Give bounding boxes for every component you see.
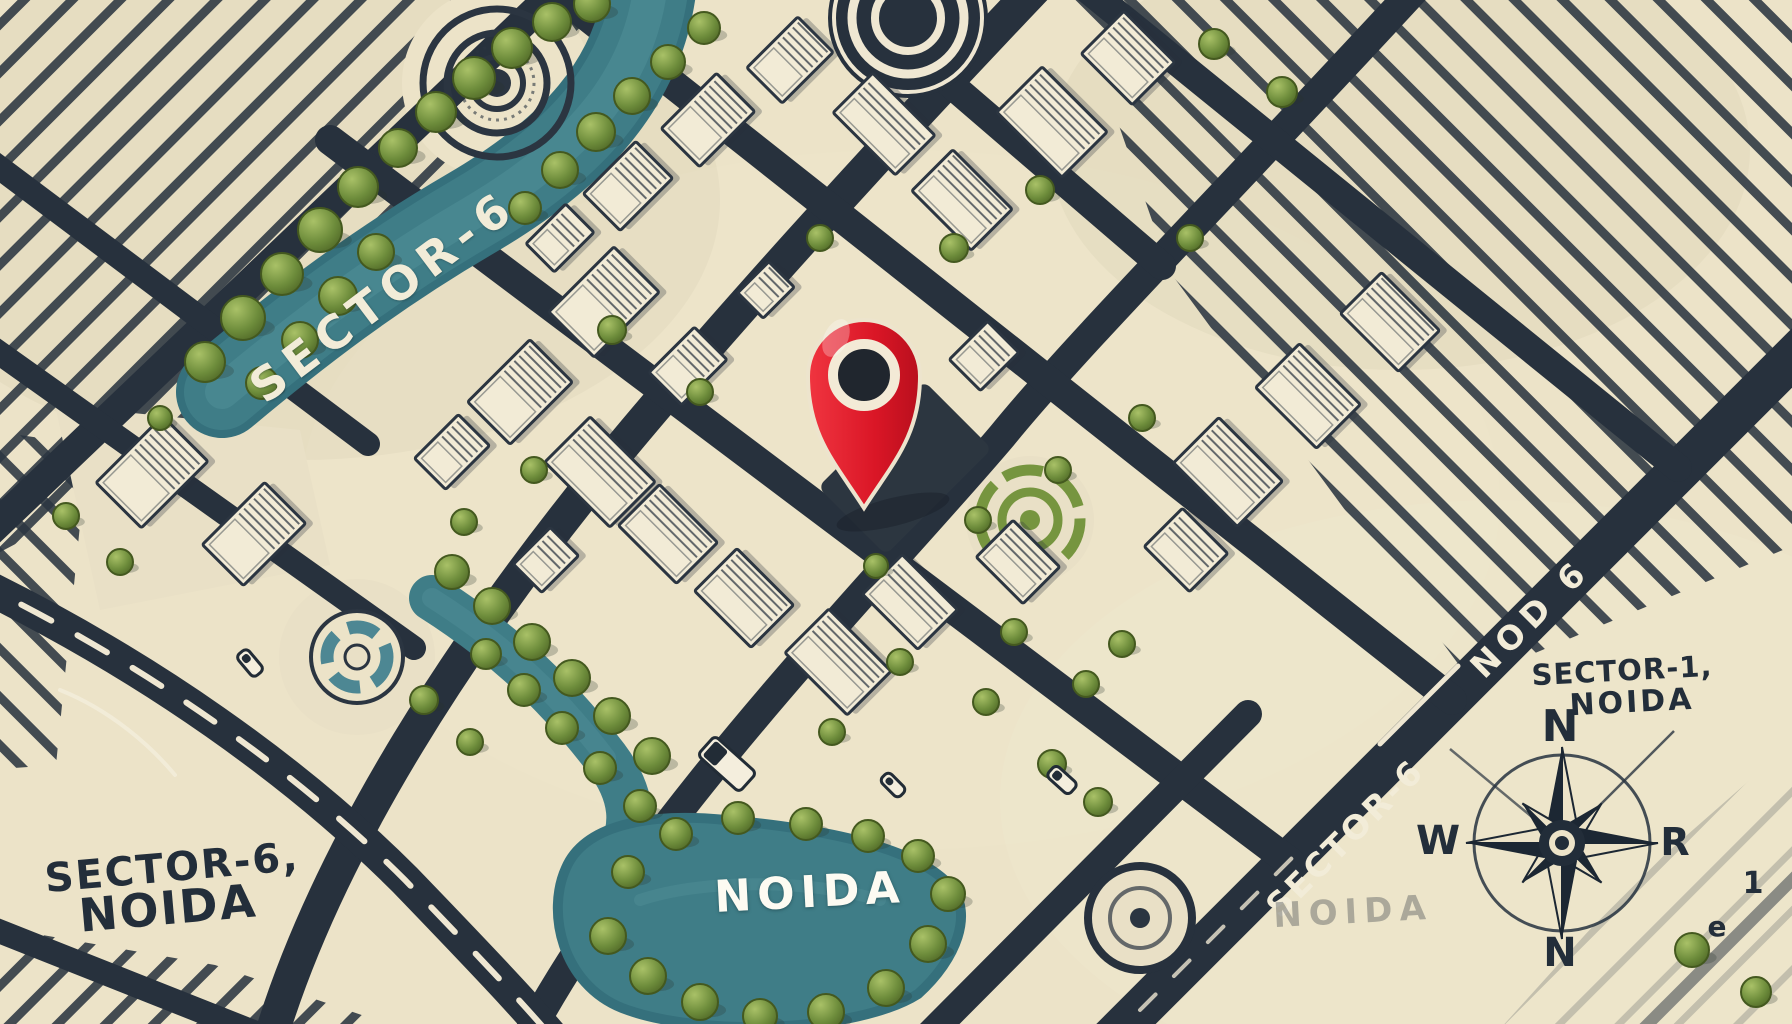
lake-noida-label: NOIDA: [713, 866, 906, 920]
map-canvas[interactable]: SECTOR-6 SECTOR-6, NOIDA NOIDA SECTOR-6 …: [0, 0, 1792, 1024]
stadium-park-icon: [311, 611, 403, 703]
compass-label-west: W: [1416, 821, 1460, 861]
mini-roundabout-icon: [1088, 866, 1192, 970]
compass-label-east: R: [1660, 823, 1689, 861]
stray-glyph-1: 1: [1743, 869, 1764, 899]
compass-label-north: N: [1542, 705, 1579, 749]
stray-glyph-e: e: [1708, 913, 1727, 941]
compass-label-south: N: [1543, 933, 1576, 973]
right-noida-label: NOIDA: [1569, 685, 1695, 721]
faint-noida-label: NOIDA: [1272, 891, 1433, 933]
bottom-left-noida-label: NOIDA: [77, 877, 259, 938]
